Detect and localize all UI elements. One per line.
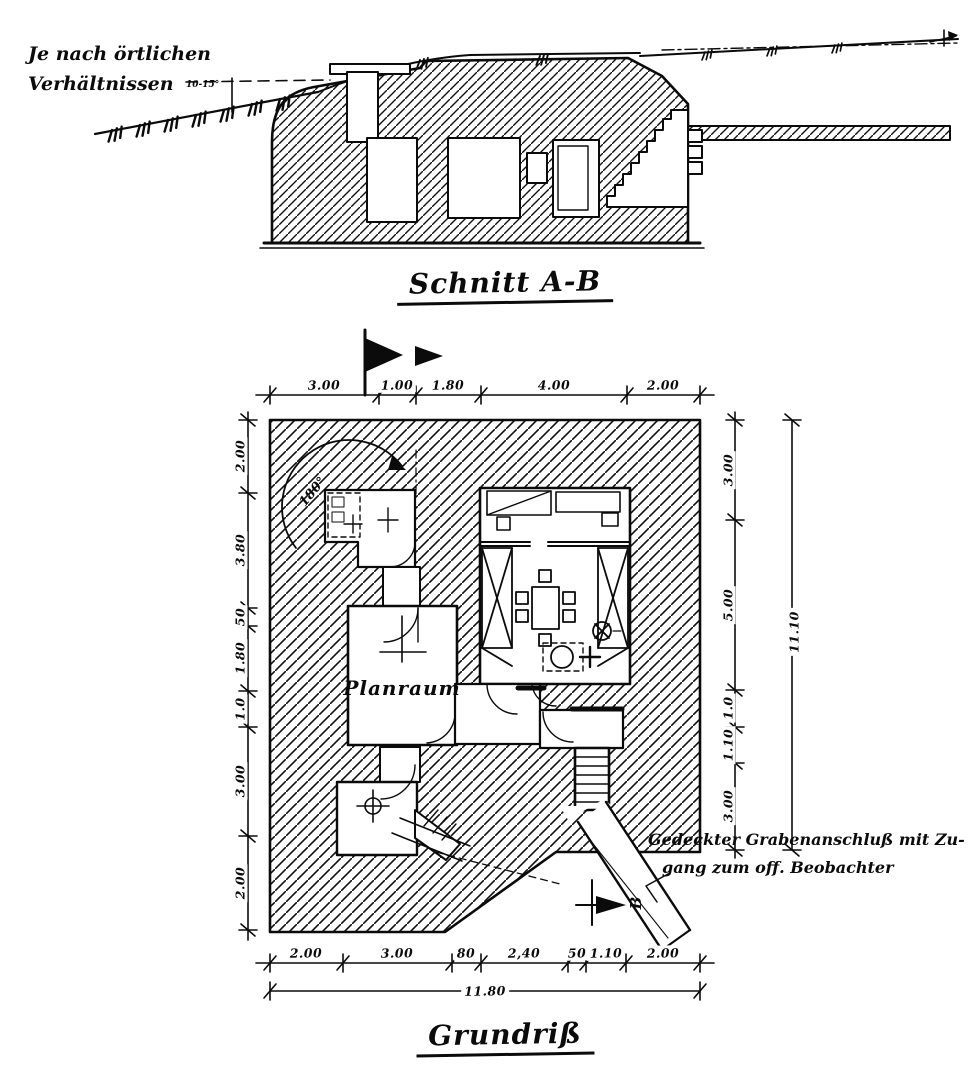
dim-bottom-5: 1.10 bbox=[587, 945, 626, 961]
section-drawing bbox=[95, 30, 958, 248]
planraum-label: Planraum bbox=[343, 676, 460, 700]
annotation-line1: Gedeckter Grabenanschluß mit Zu- bbox=[648, 830, 965, 849]
scanned-blueprint-page: { "section": { "title": "Schnitt A-B", "… bbox=[0, 0, 972, 1091]
dim-top-0: 3.00 bbox=[305, 377, 344, 393]
plan-corridor-2 bbox=[380, 747, 420, 782]
section-marker-b-label: B bbox=[627, 897, 645, 910]
slope-angle-label: 10-15° bbox=[186, 80, 219, 90]
dim-bottom-6: 2.00 bbox=[644, 945, 683, 961]
plan-corridor bbox=[383, 567, 420, 608]
dim-right-4: 3.00 bbox=[721, 787, 736, 825]
dim-bottom-1: 3.00 bbox=[378, 945, 417, 961]
dim-bottom-0: 2.00 bbox=[287, 945, 326, 961]
section-entry-shaft bbox=[347, 72, 378, 142]
section-rung-1 bbox=[688, 130, 702, 142]
plan-observation-room bbox=[337, 782, 417, 855]
plan-lobby bbox=[455, 684, 540, 744]
dim-top-2: 1.80 bbox=[429, 377, 468, 393]
dim-right-3: 1.10 bbox=[721, 726, 736, 764]
dim-right-total: 11.10 bbox=[787, 608, 802, 656]
dim-top-3: 4.00 bbox=[535, 377, 574, 393]
section-room-1 bbox=[367, 138, 417, 222]
blueprint-linework bbox=[0, 0, 972, 1091]
section-rung-2 bbox=[688, 146, 702, 158]
dim-bottom-total: 11.80 bbox=[461, 983, 509, 999]
annotation-line2: gang zum off. Beobachter bbox=[662, 858, 894, 877]
dim-bottom-4: 50 bbox=[565, 945, 590, 960]
dim-left-6: 2.00 bbox=[233, 864, 248, 902]
section-title: Schnitt A-B bbox=[397, 264, 614, 306]
terrain-note-line2: Verhältnissen bbox=[28, 70, 174, 99]
terrain-note-line1: Je nach örtlichen bbox=[28, 40, 211, 69]
plan-drawing bbox=[270, 420, 700, 950]
dim-top-4: 2.00 bbox=[644, 377, 683, 393]
section-room-2 bbox=[448, 138, 520, 218]
dim-left-0: 2.00 bbox=[233, 437, 248, 475]
section-rung-3 bbox=[688, 162, 702, 174]
dim-right-2: 1.0 bbox=[721, 693, 736, 722]
plan-stair-room bbox=[540, 710, 623, 748]
dim-left-1: 3.80 bbox=[233, 531, 248, 569]
section-cut-marker-b bbox=[576, 880, 626, 925]
plan-title: Grundriß bbox=[416, 1016, 594, 1057]
dim-bottom-2: 80 bbox=[454, 945, 479, 960]
dim-left-2: 50 bbox=[233, 605, 248, 629]
section-room-3 bbox=[553, 140, 599, 217]
dim-left-3: 1.80 bbox=[233, 639, 248, 677]
dim-left-5: 3.00 bbox=[233, 762, 248, 800]
dim-right-1: 5.00 bbox=[721, 586, 736, 624]
section-passage bbox=[527, 153, 547, 183]
dim-bottom-3: 2,40 bbox=[505, 945, 544, 961]
dim-right-0: 3.00 bbox=[721, 451, 736, 489]
dim-top-1: 1.00 bbox=[378, 377, 417, 393]
dim-left-4: 1.0 bbox=[233, 694, 248, 723]
